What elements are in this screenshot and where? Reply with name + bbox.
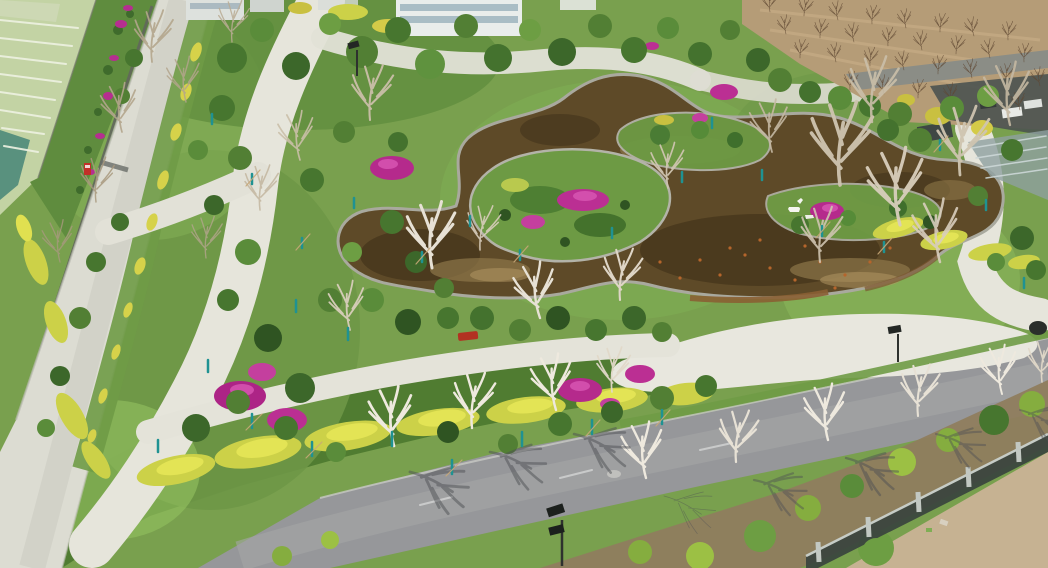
magenta-shrubs-blob bbox=[109, 55, 119, 61]
tree-canopies-dot bbox=[272, 546, 292, 566]
fence-post bbox=[915, 492, 921, 512]
pond-dot bbox=[743, 253, 746, 256]
tree-canopies-dot bbox=[37, 419, 55, 437]
road-sign bbox=[84, 163, 91, 175]
tree-canopies-dot bbox=[799, 81, 821, 103]
building bbox=[560, 0, 596, 10]
yellow-hedges-blob bbox=[288, 2, 312, 14]
tree-canopies-dot bbox=[720, 20, 740, 40]
tree-canopies-dot bbox=[509, 319, 531, 341]
magenta-shrubs-blob bbox=[378, 159, 398, 169]
tree-canopies-dot bbox=[746, 48, 770, 72]
debris bbox=[926, 528, 932, 532]
road-sign-stripe bbox=[85, 165, 90, 168]
tree-canopies-dot bbox=[454, 14, 478, 38]
tree-canopies-dot bbox=[385, 17, 411, 43]
tree-canopies-dot bbox=[333, 121, 355, 143]
tree-canopies-dot bbox=[342, 242, 362, 262]
tree-canopies-dot bbox=[321, 531, 339, 549]
tree-canopies-dot bbox=[840, 474, 864, 498]
pond-dot bbox=[678, 276, 681, 279]
tree-canopies-dot bbox=[282, 52, 310, 80]
tree-canopies-dot bbox=[987, 253, 1005, 271]
magenta-shrubs-blob bbox=[570, 381, 590, 391]
magenta-shrubs-blob bbox=[521, 215, 545, 229]
tree-canopies-dot bbox=[744, 520, 776, 552]
tree-canopies-dot bbox=[585, 319, 607, 341]
tree-canopies-dot bbox=[548, 412, 572, 436]
magenta-shrubs-blob bbox=[710, 84, 738, 100]
tree-canopies-dot bbox=[652, 322, 672, 342]
tree-canopies-dot bbox=[484, 44, 512, 72]
tree-canopies-dot bbox=[228, 146, 252, 170]
tree-canopies-dot bbox=[877, 119, 899, 141]
tree-canopies-dot bbox=[111, 213, 129, 231]
tree-canopies-dot bbox=[300, 168, 324, 192]
tree-canopies-dot bbox=[979, 405, 1009, 435]
tree-canopies-dot bbox=[125, 49, 143, 67]
yellow-hedges-blob bbox=[654, 115, 674, 125]
tree-canopies-dot bbox=[691, 121, 709, 139]
tree-canopies-dot bbox=[657, 17, 679, 39]
fence-post bbox=[965, 467, 971, 487]
tree-canopies-dot bbox=[388, 132, 408, 152]
pond-dot bbox=[758, 238, 761, 241]
tree-canopies-dot bbox=[86, 252, 106, 272]
pond-dot bbox=[803, 244, 806, 247]
tree-canopies-dot bbox=[285, 373, 315, 403]
tree-canopies-dot bbox=[437, 421, 459, 443]
pond-dot bbox=[868, 260, 871, 263]
pond-dot bbox=[718, 273, 721, 276]
magenta-shrubs-blob bbox=[103, 92, 113, 100]
terrace-strip-dot bbox=[126, 10, 134, 18]
water-glint bbox=[470, 268, 530, 282]
tree-canopies-dot bbox=[395, 309, 421, 335]
tree-canopies-dot bbox=[226, 390, 250, 414]
deer-sculpture bbox=[788, 207, 800, 212]
tree-canopies-dot bbox=[204, 195, 224, 215]
tree-canopies-dot bbox=[1010, 226, 1034, 250]
magenta-shrubs-blob bbox=[625, 365, 655, 383]
tree-canopies-dot bbox=[601, 401, 623, 423]
pond-dot bbox=[888, 246, 891, 249]
tree-canopies-dot bbox=[254, 324, 282, 352]
magenta-shrubs-blob bbox=[573, 191, 597, 201]
tree-canopies-dot bbox=[546, 306, 570, 330]
pond-dot bbox=[843, 273, 846, 276]
pond-dot bbox=[768, 266, 771, 269]
tree-canopies-dot bbox=[1001, 139, 1023, 161]
tree-canopies-dot bbox=[628, 540, 652, 564]
tree-canopies-dot bbox=[434, 278, 454, 298]
tree-canopies-dot bbox=[622, 306, 646, 330]
island-planting bbox=[574, 213, 626, 237]
tree-canopies-dot bbox=[695, 375, 717, 397]
magenta-shrubs-blob bbox=[115, 20, 127, 28]
terrace-strip-dot bbox=[84, 146, 92, 154]
pond-dot bbox=[698, 258, 701, 261]
magenta-shrubs-blob bbox=[248, 363, 276, 381]
aerial-park-photo-canvas bbox=[0, 0, 1048, 568]
building-glass bbox=[190, 3, 240, 9]
building-glass bbox=[400, 4, 518, 11]
pond-dot bbox=[728, 246, 731, 249]
tree-canopies-dot bbox=[235, 239, 261, 265]
tree-canopies-dot bbox=[380, 210, 404, 234]
pond-dot bbox=[658, 260, 661, 263]
tree-canopies-dot bbox=[519, 19, 541, 41]
tree-canopies-dot bbox=[688, 42, 712, 66]
tree-canopies-dot bbox=[69, 307, 91, 329]
magenta-shrubs-blob bbox=[95, 133, 105, 139]
tree-canopies-dot bbox=[346, 36, 378, 68]
tree-canopies-dot bbox=[326, 442, 346, 462]
building bbox=[250, 0, 284, 12]
tree-canopies-dot bbox=[217, 43, 247, 73]
boundary-fence-dot bbox=[862, 538, 890, 566]
tree-canopies-dot bbox=[588, 14, 612, 38]
tree-canopies-dot bbox=[319, 13, 341, 35]
tree-canopies-dot bbox=[548, 38, 576, 66]
tree-canopies-dot bbox=[470, 306, 494, 330]
tree-canopies-dot bbox=[727, 132, 743, 148]
tree-canopies-dot bbox=[274, 416, 298, 440]
tree-canopies-dot bbox=[650, 125, 670, 145]
aerial-park-photo bbox=[0, 0, 1048, 568]
tree-canopies-dot bbox=[415, 49, 445, 79]
magenta-shrubs-blob bbox=[123, 5, 133, 11]
tree-canopies-dot bbox=[50, 366, 70, 386]
tree-canopies-dot bbox=[940, 96, 964, 120]
tree-canopies-dot bbox=[768, 68, 792, 92]
tree-canopies-dot bbox=[908, 128, 932, 152]
tree-canopies-dot bbox=[621, 37, 647, 63]
pond-dot bbox=[833, 286, 836, 289]
tree-canopies-dot bbox=[217, 289, 239, 311]
fence-post bbox=[865, 517, 871, 537]
tree-canopies-dot bbox=[560, 237, 570, 247]
pond-dot bbox=[793, 278, 796, 281]
terrace-strip-dot bbox=[94, 108, 102, 116]
fence-post bbox=[1015, 442, 1021, 462]
magenta-shrubs-blob bbox=[645, 42, 659, 50]
tree-canopies-dot bbox=[188, 140, 208, 160]
fence-post bbox=[815, 542, 821, 562]
tree-canopies-dot bbox=[182, 414, 210, 442]
tree-canopies-dot bbox=[1026, 260, 1046, 280]
street-lamp-head bbox=[1029, 321, 1047, 335]
terrace-strip-dot bbox=[103, 65, 113, 75]
deep-water bbox=[520, 114, 600, 146]
tree-canopies-dot bbox=[795, 495, 821, 521]
tree-canopies-dot bbox=[437, 307, 459, 329]
tree-canopies-dot bbox=[250, 18, 274, 42]
terrace-strip-dot bbox=[76, 186, 84, 194]
tree-canopies-dot bbox=[360, 288, 384, 312]
tree-canopies-dot bbox=[620, 200, 630, 210]
island-yellow-shrub bbox=[501, 178, 529, 192]
tree-canopies-dot bbox=[650, 386, 674, 410]
